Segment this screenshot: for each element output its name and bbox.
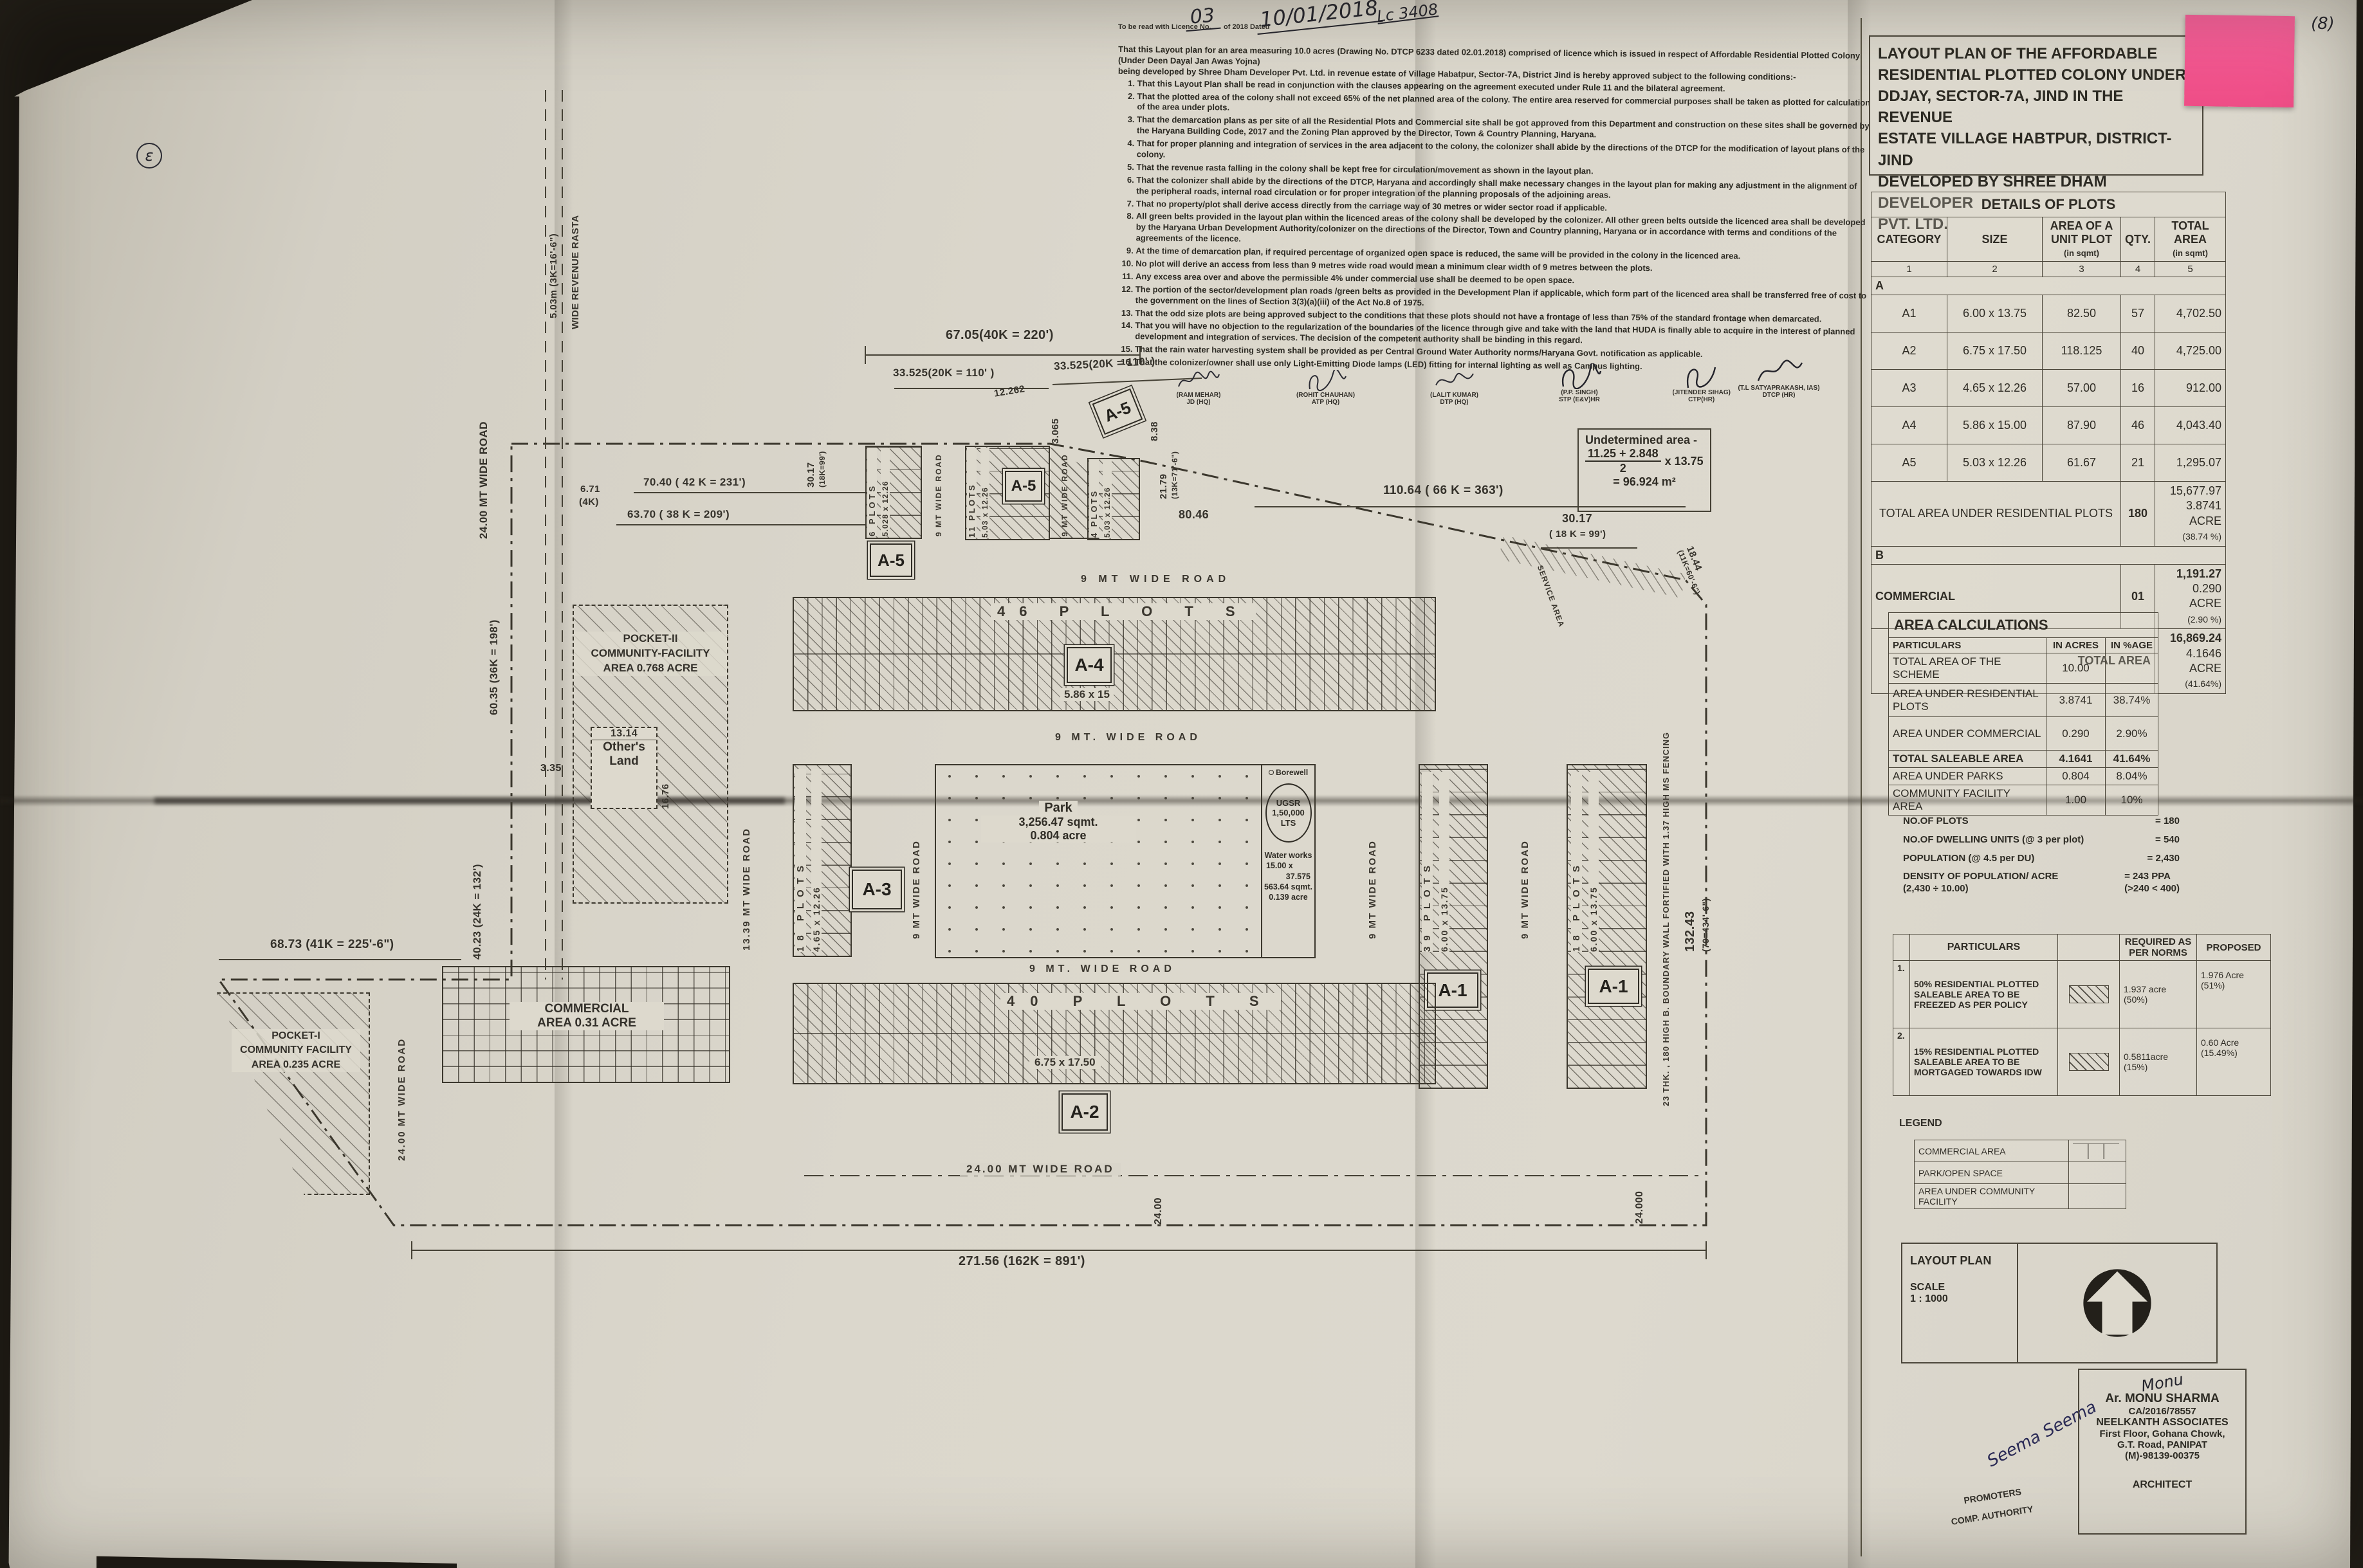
legend-swatch-park	[2069, 1162, 2126, 1184]
stat-value: = 540	[2155, 834, 2180, 846]
col18b-size: 6.00 x 13.75	[1588, 772, 1599, 952]
scale-value: 1 : 1000	[1910, 1293, 2009, 1305]
signatories-row-2: (P.P. SINGH) STP (E&V)HR (JITENDER SIHAG…	[1557, 363, 1731, 403]
col2-size: 5.03 x 12.26	[980, 448, 989, 538]
title-line-3: DDJAY, SECTOR-7A, JIND IN THE REVENUE	[1878, 86, 2194, 128]
pocket1-labels: POCKET-I COMMUNITY FACILITY AREA 0.235 A…	[232, 1029, 360, 1072]
details-row-total: 4,043.40	[2155, 407, 2226, 444]
details-h-category: CATEGORY	[1871, 217, 1947, 262]
undetermined-area-box: Undetermined area - 11.25 + 2.848 2 x 13…	[1577, 428, 1711, 512]
signatory-name: (T.L SATYAPRAKASH, IAS)	[1738, 385, 1819, 392]
sticky-note	[2184, 15, 2295, 107]
borewell-dot	[1269, 770, 1274, 775]
signatory-name: (ROHIT CHAUHAN)	[1296, 392, 1355, 399]
area-calc-row-pct	[2106, 653, 2158, 684]
norms-h1: PARTICULARS	[1910, 934, 2058, 961]
architect-phone: (M)-98139-00375	[2079, 1450, 2245, 1461]
norms-proposed-pct: (15.49%)	[2201, 1048, 2238, 1058]
commercial-labels: COMMERCIAL AREA 0.31 ACRE	[510, 1002, 664, 1030]
legend-title: LEGEND	[1899, 1118, 1942, 1129]
others-line2: Land	[592, 754, 656, 769]
signatory: (ROHIT CHAUHAN) ATP (HQ)	[1296, 370, 1355, 406]
details-row-cat: A5	[1871, 444, 1947, 482]
details-row-size: 5.03 x 12.26	[1947, 444, 2043, 482]
condition-item: That the demarcation plans as per site o…	[1137, 115, 1870, 143]
details-row-area: 57.00	[2043, 370, 2121, 407]
dim-1314: 13.14	[592, 728, 656, 740]
park-title: Park	[1039, 801, 1077, 816]
area-calc-h1: PARTICULARS	[1889, 638, 2046, 653]
legend-item-label: AREA UNDER COMMUNITY FACILITY	[1915, 1184, 2069, 1209]
dim-13243b: (79=434'-6")	[1700, 836, 1711, 952]
block-label-a1-right: A-1	[1588, 969, 1639, 1004]
area-calc-row-label: AREA UNDER PARKS	[1889, 768, 2046, 785]
dim-3017b: 30.17	[1562, 512, 1592, 525]
commercial-line1: COMMERCIAL	[510, 1002, 664, 1016]
signatory-title: DTP (HQ)	[1440, 399, 1468, 406]
norms-row-proposed: 0.60 Acre (15.49%)	[2197, 1028, 2271, 1096]
dim-33a: 33.525(20K = 110' )	[893, 367, 995, 379]
scale-block: LAYOUT PLAN SCALE 1 : 1000	[1901, 1243, 2218, 1363]
col2-count: 11 PLOTS	[967, 448, 977, 538]
norms-row-num: 1.	[1893, 961, 1910, 1028]
signatory-title: JD (HQ)	[1186, 399, 1210, 406]
pocket2-line1: POCKET-II	[574, 632, 727, 646]
road-9mt-v3: 9 MT WIDE ROAD	[911, 791, 922, 939]
details-total-pct: (41.64%)	[2185, 679, 2221, 689]
signature-scribble	[1432, 370, 1477, 392]
dim-8046: 80.46	[1179, 508, 1209, 522]
architect-addr1: First Floor, Gohana Chowk,	[2079, 1428, 2245, 1439]
signatory-name: (LALIT KUMAR)	[1430, 392, 1478, 399]
details-row-cat: A1	[1871, 295, 1947, 333]
details-row-cat: A4	[1871, 407, 1947, 444]
legend-item-label: COMMERCIAL AREA	[1915, 1140, 2069, 1162]
scanned-layout-plan-sheet: To be read with Licence No. 03 of 2018 D…	[0, 0, 2363, 1568]
stat-label: DENSITY OF POPULATION/ ACRE (2,430 ÷ 10.…	[1903, 871, 2058, 895]
area-calc-row-label: AREA UNDER RESIDENTIAL PLOTS	[1889, 684, 2046, 717]
details-row-qty: 46	[2121, 407, 2155, 444]
col39-size: 6.00 x 13.75	[1439, 772, 1449, 952]
dim-3017b2: ( 18 K = 99')	[1549, 529, 1606, 540]
details-h-qty: QTY.	[2121, 217, 2155, 262]
road-9mt-v1: 9 MT WIDE ROAD	[934, 450, 943, 536]
dim-1676: 16.76	[660, 746, 671, 809]
scale-label: SCALE	[1910, 1282, 2009, 1293]
norms-row-label: 15% RESIDENTIAL PLOTTED SALEABLE AREA TO…	[1910, 1028, 2058, 1096]
col18b-count: 18 PLOTS	[1571, 772, 1582, 952]
park-sqmt: 3,256.47 sqmt.	[981, 816, 1136, 829]
details-group-a: A	[1871, 277, 2226, 295]
details-row-size: 6.00 x 13.75	[1947, 295, 2043, 333]
col18a-size: 4.65 x 12.26	[811, 769, 822, 952]
ww-line3: 37.575	[1262, 871, 1314, 882]
corner-scribble: ɛ	[136, 143, 162, 169]
stat-value: = 243 PPA (>240 < 400)	[2124, 871, 2180, 895]
condition-item: That you will have no objection to the r…	[1135, 321, 1868, 349]
details-total-res-label: TOTAL AREA UNDER RESIDENTIAL PLOTS	[1871, 482, 2121, 547]
details-row-cat: A3	[1871, 370, 1947, 407]
details-row-qty: 57	[2121, 295, 2155, 333]
area-calc-row-pct: 10%	[2106, 785, 2158, 816]
ugsr-line2: 1,50,000	[1267, 808, 1310, 818]
hatch-swatch	[2069, 1053, 2109, 1071]
legend-swatch-commercial	[2069, 1140, 2126, 1162]
others-land-box: 13.14 Other's Land	[591, 727, 657, 809]
area-calc-row-label: AREA UNDER COMMERCIAL	[1889, 717, 2046, 751]
architect-role: ARCHITECT	[2079, 1479, 2245, 1491]
norms-required-pct: (15%)	[2124, 1062, 2147, 1072]
pocket2-labels: POCKET-II COMMUNITY-FACILITY AREA 0.768 …	[574, 632, 727, 676]
area-calc-row-pct: 2.90%	[2106, 717, 2158, 751]
title-line-4: ESTATE VILLAGE HABTPUR, DISTRICT- JIND	[1878, 128, 2194, 170]
ugsr-line1: UGSR	[1267, 798, 1310, 808]
details-colnum-3: 3	[2043, 262, 2121, 277]
road-24mt-left-lower: 24.00 MT WIDE ROAD	[396, 1010, 407, 1161]
plot-block-a5-col2-labels: 11 PLOTS 5.03 x 12.26	[967, 448, 989, 538]
dim-3017a2: (18K=99')	[818, 417, 827, 488]
architect-addr2: G.T. Road, PANIPAT	[2079, 1439, 2245, 1450]
ugsr-ellipse: UGSR 1,50,000 LTS	[1265, 783, 1312, 843]
norms-row-required: 1.937 acre (50%)	[2120, 961, 2197, 1028]
ww-line2: 15.00 x	[1262, 861, 1314, 871]
details-h-area-sub: (in sqmt)	[2064, 248, 2099, 258]
signatory-dtcp: (T.L SATYAPRAKASH, IAS) DTCP (HR)	[1724, 359, 1834, 399]
area-calc-row-pct: 41.64%	[2106, 751, 2158, 768]
scale-cell: LAYOUT PLAN SCALE 1 : 1000	[1902, 1244, 2018, 1362]
col3-size: 5.03 x 12.26	[1103, 459, 1112, 538]
row40-label: 40 P L O T S	[1000, 993, 1281, 1010]
scale-title: LAYOUT PLAN	[1910, 1254, 2009, 1268]
dim-revenue-rasta-label: WIDE REVENUE RASTA	[570, 85, 581, 329]
title-line-1: LAYOUT PLAN OF THE AFFORDABLE	[1878, 43, 2194, 64]
norms-row-swatch-cell	[2058, 961, 2120, 1028]
details-row-area: 82.50	[2043, 295, 2121, 333]
architect-reg: CA/2016/78557	[2079, 1406, 2245, 1417]
norms-row-num: 2.	[1893, 1028, 1910, 1096]
dim-27156: 271.56 (162K = 891')	[959, 1254, 1085, 1269]
details-commercial-pct: (2.90 %)	[2187, 614, 2221, 624]
stat-label: NO.OF PLOTS	[1903, 816, 1969, 828]
road-1339: 13.39 MT WIDE ROAD	[741, 770, 752, 951]
signatory-name: (JITENDER SIHAG)	[1672, 389, 1731, 396]
dim-6035: 60.35 (36K = 198')	[488, 599, 501, 715]
conditions-notes-block: That this Layout plan for an area measur…	[1116, 44, 1871, 376]
road-9mt-h3: 9 MT. WIDE ROAD	[1029, 963, 1175, 975]
commercial-line2: AREA 0.31 ACRE	[510, 1016, 664, 1030]
norms-row-swatch-cell	[2058, 1028, 2120, 1096]
stat-label-sub: (2,430 ÷ 10.00)	[1903, 883, 1969, 894]
conditions-list: That this Layout Plan shall be read in c…	[1116, 78, 1871, 376]
dim-671: 6.71	[580, 484, 600, 495]
signature-scribble	[1557, 363, 1602, 389]
dim-671b: (4K)	[579, 497, 599, 507]
details-colnum-2: 2	[1947, 262, 2043, 277]
legend-swatch-community	[2069, 1184, 2126, 1209]
pocket1-line1: POCKET-I	[232, 1029, 360, 1043]
scheme-stats: NO.OF PLOTS= 180 NO.OF DWELLING UNITS (@…	[1903, 816, 2180, 895]
area-calc-row-acres: 0.290	[2046, 717, 2106, 751]
plot-block-a3-labels: 18 PLOTS 4.65 x 12.26	[795, 769, 822, 952]
dim-7040: 70.40 ( 42 K = 231')	[643, 476, 746, 489]
area-calc-row-acres: 0.804	[2046, 768, 2106, 785]
signatory-title: CTP(HR)	[1688, 396, 1715, 403]
title-line-2: RESIDENTIAL PLOTTED COLONY UNDER	[1878, 64, 2194, 86]
hatch-swatch	[2069, 985, 2109, 1003]
block-label-a2: A-2	[1062, 1093, 1108, 1131]
dim-6873: 68.73 (41K = 225'-6")	[270, 938, 394, 952]
details-colnum-4: 4	[2121, 262, 2155, 277]
details-row-area: 61.67	[2043, 444, 2121, 482]
area-calc-row-acres: 1.00	[2046, 785, 2106, 816]
ww-line1: Water works	[1262, 850, 1314, 861]
park-area: Park 3,256.47 sqmt. 0.804 acre	[936, 765, 1261, 957]
plot-block-39-labels: 39 PLOTS 6.00 x 13.75	[1422, 772, 1449, 952]
ugsr-line3: LTS	[1267, 818, 1310, 828]
signature-scribble	[1303, 370, 1348, 392]
pocket1-line3: AREA 0.235 ACRE	[232, 1058, 360, 1072]
road-9mt-v5: 9 MT WIDE ROAD	[1520, 791, 1531, 939]
norms-row-proposed: 1.976 Acre (51%)	[2197, 961, 2271, 1028]
condition-item: All green belts provided in the layout p…	[1136, 212, 1870, 251]
north-arrow-icon	[2081, 1267, 2153, 1339]
details-row-qty: 16	[2121, 370, 2155, 407]
condition-item: That the colonizer shall abide by the di…	[1136, 175, 1870, 203]
undetermined-title: Undetermined area -	[1585, 433, 1704, 447]
dim-4023: 40.23 (24K = 132')	[471, 850, 484, 960]
dim-67: 67.05(40K = 220')	[946, 328, 1054, 343]
details-row-area: 118.125	[2043, 333, 2121, 370]
details-row-total: 4,725.00	[2155, 333, 2226, 370]
plot-block-a5-col1-labels: 6 PLOTS 5.028 x 12.26	[867, 448, 890, 536]
signatory-title: ATP (HQ)	[1312, 399, 1340, 406]
a2-size-label: 6.75 x 17.50	[1029, 1056, 1101, 1069]
signatory-name: (P.P. SINGH)	[1561, 389, 1597, 396]
undetermined-numerator: 11.25 + 2.848	[1585, 447, 1661, 462]
details-h-total: TOTAL AREA (in sqmt)	[2155, 217, 2226, 262]
details-total-res-values: 15,677.97 3.8741 ACRE (38.74 %)	[2155, 482, 2226, 547]
area-calc-row-label: TOTAL AREA OF THE SCHEME	[1889, 653, 2046, 684]
plot-block-18r-labels: 18 PLOTS 6.00 x 13.75	[1571, 772, 1599, 952]
dim-24b: 24.000	[1634, 1150, 1646, 1224]
row46-label: 46 P L O T S	[991, 603, 1256, 620]
signatory: (LALIT KUMAR) DTP (HQ)	[1430, 370, 1478, 406]
plot-block-a5-col3-labels: 4 PLOTS 5.03 x 12.26	[1089, 459, 1112, 538]
grid-swatch	[2073, 1144, 2119, 1159]
details-h-area: AREA OF A UNIT PLOT (in sqmt)	[2043, 217, 2121, 262]
signatory: (P.P. SINGH) STP (E&V)HR	[1557, 363, 1602, 403]
architect-block: Monu Ar. MONU SHARMA CA/2016/78557 NEELK…	[2078, 1369, 2247, 1535]
norms-required-pct: (50%)	[2124, 994, 2147, 1005]
signatory: (JITENDER SIHAG) CTP(HR)	[1672, 363, 1731, 403]
area-calc-row-label: COMMUNITY FACILITY AREA	[1889, 785, 2046, 816]
details-row-qty: 21	[2121, 444, 2155, 482]
area-calc-row-pct: 38.74%	[2106, 684, 2158, 717]
details-row-qty: 40	[2121, 333, 2155, 370]
dim-24mt-road-left: 24.00 MT WIDE ROAD	[477, 372, 490, 539]
signatory-title: DTCP (HR)	[1763, 392, 1796, 399]
area-calc-row-acres: 10.00	[2046, 653, 2106, 684]
dim-3065: 3.065	[1050, 385, 1061, 444]
signatory-name: (RAM MEHAR)	[1177, 392, 1221, 399]
utility-cell: Borewell UGSR 1,50,000 LTS Water works 1…	[1261, 765, 1314, 957]
details-row-total: 4,702.50	[2155, 295, 2226, 333]
area-calc-row-acres: 3.8741	[2046, 684, 2106, 717]
dim-335: 3.35	[540, 763, 562, 774]
norms-proposed-pct: (51%)	[2201, 980, 2225, 990]
details-total-acre: 4.1646 ACRE	[2186, 647, 2221, 675]
signatory-title: STP (E&V)HR	[1559, 396, 1600, 403]
condition-item: That the plotted area of the colony shal…	[1137, 91, 1870, 120]
stat-value-sub: (>240 < 400)	[2124, 883, 2180, 894]
details-row-area: 87.90	[2043, 407, 2121, 444]
road-9mt-v2: 9 MT WIDE ROAD	[1060, 450, 1069, 536]
details-h-total-sub: (in sqmt)	[2173, 248, 2208, 258]
area-calc-row-acres: 4.1641	[2046, 751, 2106, 768]
details-row-size: 4.65 x 12.26	[1947, 370, 2043, 407]
signatories-row: (RAM MEHAR) JD (HQ) (ROHIT CHAUHAN) ATP …	[1176, 370, 1478, 406]
undetermined-result: = 96.924 m²	[1585, 475, 1704, 489]
details-commercial-acre: 0.290 ACRE	[2189, 582, 2221, 610]
north-arrow-cell	[2018, 1244, 2216, 1362]
road-9mt-h2: 9 MT. WIDE ROAD	[1055, 732, 1201, 743]
area-calc-row-label: TOTAL SALEABLE AREA	[1889, 751, 2046, 768]
dim-13243-group: 132.43 (79=434'-6")	[1683, 836, 1711, 952]
area-calculations-table: AREA CALCULATIONS PARTICULARS IN ACRES I…	[1888, 612, 2158, 816]
block-label-a5-center: A-5	[1005, 471, 1042, 502]
details-title: DETAILS OF PLOTS	[1871, 192, 2226, 217]
architect-firm: NEELKANTH ASSOCIATES	[2079, 1417, 2245, 1428]
area-calc-h3: IN %AGE	[2106, 638, 2158, 653]
waterworks-labels: Water works 15.00 x 37.575 563.64 sqmt. …	[1262, 850, 1314, 902]
road-24mt-bottom: 24.00 MT WIDE ROAD	[960, 1163, 1121, 1176]
dim-13243: 132.43	[1683, 836, 1698, 952]
undetermined-denominator: 2	[1620, 462, 1626, 475]
col1-size: 5.028 x 12.26	[881, 448, 890, 536]
col3-count: 4 PLOTS	[1089, 459, 1099, 538]
details-h-size: SIZE	[1947, 217, 2043, 262]
page-number-handwritten: (8)	[2311, 14, 2335, 33]
details-total-values: 16,869.24 4.1646 ACRE (41.64%)	[2155, 629, 2226, 694]
details-colnum-5: 5	[2155, 262, 2226, 277]
others-line1: Other's	[592, 740, 656, 754]
area-calc-title: AREA CALCULATIONS	[1889, 613, 2158, 638]
stat-value: = 2,430	[2147, 853, 2180, 865]
dim-11064: 110.64 ( 66 K = 363')	[1383, 484, 1503, 498]
licence-no-handwritten: 03	[1184, 4, 1220, 32]
details-row-cat: A2	[1871, 333, 1947, 370]
road-9mt-v4: 9 MT WIDE ROAD	[1367, 791, 1378, 939]
legend-table: COMMERCIAL AREA PARK/OPEN SPACE AREA UND…	[1914, 1140, 2126, 1209]
title-block: LAYOUT PLAN OF THE AFFORDABLE RESIDENTIA…	[1869, 35, 2203, 176]
col18a-count: 18 PLOTS	[795, 769, 806, 952]
norms-table: PARTICULARS REQUIRED AS PER NORMS PROPOS…	[1893, 934, 2271, 1096]
legend-item-label: PARK/OPEN SPACE	[1915, 1162, 2069, 1184]
details-commercial-values: 1,191.27 0.290 ACRE (2.90 %)	[2155, 564, 2226, 629]
col1-count: 6 PLOTS	[867, 448, 877, 536]
dim-3017a-group: 30.17 (18K=99')	[805, 417, 827, 488]
details-group-b: B	[1871, 546, 2226, 564]
details-row-total: 912.00	[2155, 370, 2226, 407]
pocket2-line2: COMMUNITY-FACILITY	[574, 646, 727, 661]
stat-label: NO.OF DWELLING UNITS (@ 3 per plot)	[1903, 834, 2084, 846]
details-total-res-pct: (38.74 %)	[2182, 531, 2221, 542]
signature-scribble	[1753, 359, 1805, 385]
norms-h2: REQUIRED AS PER NORMS	[2120, 934, 2197, 961]
details-total-res-acre: 3.8741 ACRE	[2186, 499, 2221, 527]
signature-scribble	[1176, 370, 1221, 392]
park-block: Park 3,256.47 sqmt. 0.804 acre Borewell …	[935, 764, 1316, 958]
dim-revenue-rasta-size: 5.03m (3K=16'-6")	[548, 125, 559, 318]
signature-scribble	[1679, 363, 1724, 389]
borewell-label: Borewell	[1262, 768, 1314, 777]
norms-h3: PROPOSED	[2197, 934, 2271, 961]
a4-size-label: 5.86 x 15	[1060, 688, 1114, 701]
ww-line5: 0.139 acre	[1262, 892, 1314, 902]
details-row-size: 5.86 x 15.00	[1947, 407, 2043, 444]
condition-item: The portion of the sector/development pl…	[1136, 284, 1869, 313]
undetermined-mult: x 13.75	[1665, 455, 1704, 468]
area-calc-h2: IN ACRES	[2046, 638, 2106, 653]
pocket2-line3: AREA 0.768 ACRE	[574, 661, 727, 676]
dim-6370: 63.70 ( 38 K = 209')	[627, 508, 730, 521]
details-row-size: 6.75 x 17.50	[1947, 333, 2043, 370]
stat-label: POPULATION (@ 4.5 per DU)	[1903, 853, 2034, 865]
dim-2179-group: 21.79 (13K=71'-6")	[1158, 390, 1179, 499]
signatory: (RAM MEHAR) JD (HQ)	[1176, 370, 1221, 406]
block-label-a4: A-4	[1067, 647, 1112, 683]
dim-3017a: 30.17	[805, 417, 816, 488]
block-label-a3: A-3	[852, 870, 902, 909]
ww-line4: 563.64 sqmt.	[1262, 882, 1314, 892]
norms-row-label: 50% RESIDENTIAL PLOTTED SALEABLE AREA TO…	[1910, 961, 2058, 1028]
details-total-res-qty: 180	[2121, 482, 2155, 547]
dim-24a: 24.00	[1153, 1178, 1164, 1225]
park-acre: 0.804 acre	[981, 829, 1136, 843]
stat-value: = 180	[2155, 816, 2180, 828]
pocket1-line2: COMMUNITY FACILITY	[232, 1043, 360, 1057]
norms-row-required: 0.5811acre (15%)	[2120, 1028, 2197, 1096]
dim-2179: 21.79	[1158, 390, 1169, 499]
details-row-total: 1,295.07	[2155, 444, 2226, 482]
road-9mt-h1: 9 MT WIDE ROAD	[1081, 574, 1230, 585]
dim-2179b: (13K=71'-6")	[1170, 390, 1179, 499]
details-colnum-1: 1	[1871, 262, 1947, 277]
boundary-wall-label: 23 THK. , 180 HIGH B. BOUNDARY WALL FORT…	[1661, 733, 1671, 1106]
block-label-a5-left: A-5	[870, 543, 912, 577]
condition-item: That for proper planning and integration…	[1137, 138, 1870, 167]
area-calc-row-pct: 8.04%	[2106, 768, 2158, 785]
col39-count: 39 PLOTS	[1422, 772, 1433, 952]
park-labels: Park 3,256.47 sqmt. 0.804 acre	[981, 801, 1136, 843]
